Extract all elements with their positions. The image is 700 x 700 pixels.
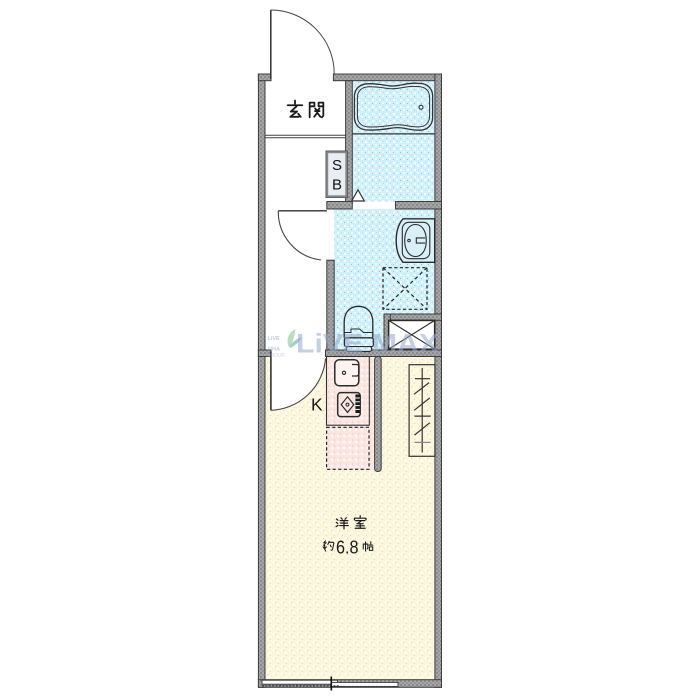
- svg-text:S: S: [332, 157, 342, 174]
- svg-text:B: B: [332, 177, 342, 194]
- svg-text:LiVE MAX: LiVE MAX: [296, 329, 439, 359]
- svg-text:6.8: 6.8: [336, 537, 359, 558]
- svg-text:K: K: [311, 395, 323, 415]
- svg-text:NHA: NHA: [268, 347, 280, 353]
- svg-text:GROUP: GROUP: [267, 353, 286, 359]
- svg-text:LiVE: LiVE: [268, 336, 281, 342]
